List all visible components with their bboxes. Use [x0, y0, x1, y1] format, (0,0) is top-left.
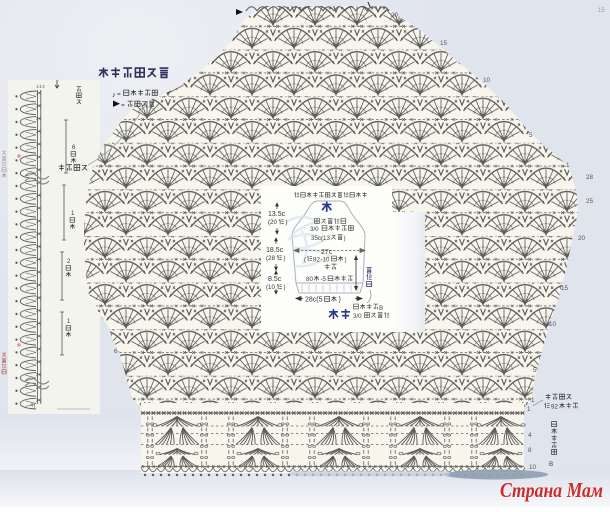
svg-text:15: 15	[440, 40, 448, 47]
svg-text:13.5c: 13.5c	[268, 211, 286, 218]
svg-text:): )	[286, 219, 288, 226]
svg-text:B: B	[379, 305, 383, 312]
svg-text:5: 5	[529, 132, 533, 139]
svg-text:25: 25	[586, 198, 594, 205]
svg-text:=: =	[121, 102, 125, 109]
svg-text:♪♪♪: ♪♪♪	[36, 84, 45, 90]
svg-text:3/0: 3/0	[353, 313, 362, 320]
svg-text:6: 6	[114, 348, 118, 355]
svg-text:28: 28	[586, 174, 594, 181]
svg-text:8.5c: 8.5c	[268, 276, 282, 283]
svg-text:1: 1	[531, 397, 535, 404]
svg-text:4: 4	[528, 432, 532, 439]
svg-text:35c(13: 35c(13	[311, 235, 330, 242]
svg-text:): )	[344, 235, 346, 242]
svg-text:-10: -10	[321, 257, 331, 264]
svg-text:27c: 27c	[321, 249, 333, 256]
svg-text:(28: (28	[266, 255, 276, 262]
svg-text:): )	[345, 257, 347, 264]
svg-text:80: 80	[306, 276, 313, 283]
svg-text:1: 1	[566, 162, 570, 169]
svg-text:15: 15	[561, 285, 569, 292]
svg-text:5: 5	[533, 367, 537, 374]
svg-text:92: 92	[313, 257, 320, 264]
svg-text:10: 10	[529, 464, 537, 471]
svg-text:8: 8	[528, 447, 532, 454]
svg-text:18.5c: 18.5c	[266, 247, 284, 254]
svg-text:10: 10	[549, 321, 557, 328]
svg-text:Страна Мам: Страна Мам	[500, 478, 603, 502]
svg-text:(10: (10	[266, 284, 276, 291]
svg-text:B: B	[549, 461, 553, 468]
svg-text:10: 10	[483, 77, 491, 84]
svg-text:20: 20	[578, 235, 586, 242]
svg-text:4): 4)	[30, 403, 35, 409]
svg-text:): )	[284, 255, 286, 262]
svg-text:28c(5: 28c(5	[305, 297, 323, 304]
svg-text:): )	[284, 284, 286, 291]
svg-text:20: 20	[391, 12, 399, 19]
svg-text:=: =	[117, 91, 121, 98]
svg-text:92: 92	[551, 404, 558, 411]
svg-text:15: 15	[598, 8, 605, 14]
svg-text:): )	[339, 297, 341, 304]
svg-text:1: 1	[527, 406, 531, 413]
svg-text:3/0: 3/0	[310, 226, 319, 233]
svg-text:-5: -5	[321, 276, 327, 283]
svg-text:♪: ♪	[112, 90, 116, 99]
svg-text:(20: (20	[268, 219, 278, 226]
